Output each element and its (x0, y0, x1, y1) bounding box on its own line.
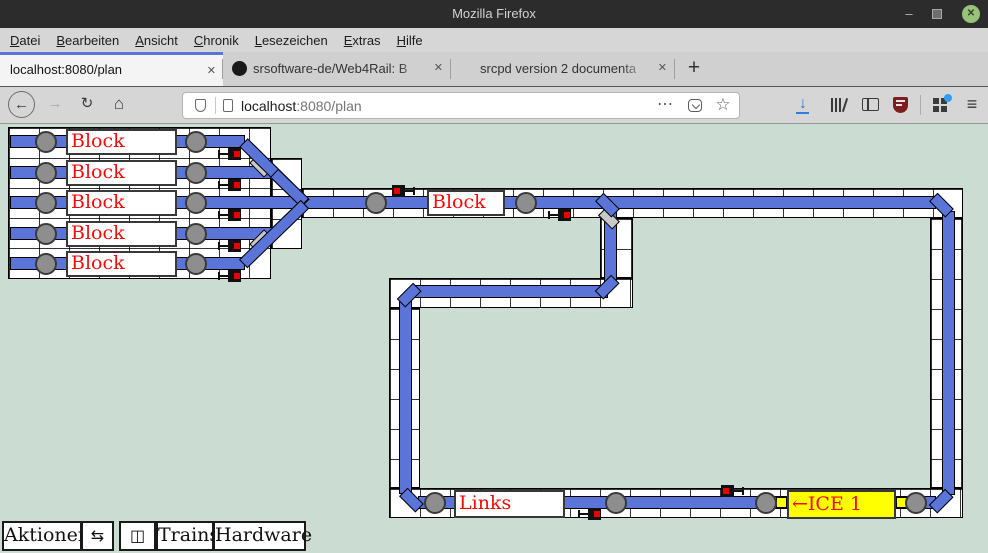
tab-title: srcpd version 2 documenta (480, 61, 648, 76)
block-label[interactable]: Block (66, 251, 177, 277)
minimize-button[interactable]: – (900, 5, 918, 23)
back-button[interactable]: ← (8, 91, 35, 118)
sensor-contact[interactable] (605, 492, 627, 514)
signal-red-lamp (394, 188, 400, 194)
new-tab-button[interactable]: + (681, 55, 707, 81)
columns-icon[interactable]: ◫ (119, 521, 156, 551)
sensor-contact[interactable] (185, 192, 207, 214)
track-segment[interactable] (942, 211, 955, 495)
sensor-contact[interactable] (35, 253, 57, 275)
train-block-ice1[interactable]: ←ICE 1 (787, 490, 896, 519)
signal-pole (734, 490, 742, 492)
block-label[interactable]: Block (66, 190, 177, 216)
navigation-bar: ← → ↻ ⌂ localhost:8080/plan ⋯ ☆ ↓ ≡ (0, 87, 988, 124)
reload-button[interactable]: ↻ (76, 87, 98, 123)
signal-red-lamp (234, 273, 240, 279)
menu-lesezeichen[interactable]: Lesezeichen (255, 33, 328, 48)
signal[interactable] (721, 485, 744, 497)
toolbar-separator (920, 95, 921, 115)
block-label[interactable]: Block (66, 221, 177, 247)
menu-datei[interactable]: Datei (10, 33, 40, 48)
signal[interactable] (218, 240, 241, 252)
menu-ansicht[interactable]: Ansicht (135, 33, 178, 48)
menu-chronik[interactable]: Chronik (194, 33, 239, 48)
page-info-icon[interactable] (223, 99, 233, 112)
signal-pole (550, 214, 558, 216)
signal-red-lamp (234, 212, 240, 218)
signal-pole (220, 153, 228, 155)
tracking-protection-shield-icon[interactable] (195, 99, 206, 112)
url-bar[interactable]: localhost:8080/plan ⋯ ☆ (182, 92, 740, 119)
track-segment[interactable] (399, 300, 412, 494)
signal[interactable] (218, 148, 241, 160)
signal-pole (580, 513, 588, 515)
github-icon (232, 61, 247, 76)
window-titlebar: Mozilla Firefox – ✕ (0, 0, 988, 28)
tab-bar: localhost:8080/plan ✕ srsoftware-de/Web4… (0, 52, 988, 87)
sidebar-toggle-icon[interactable] (862, 98, 879, 111)
occupied-track-stub (776, 497, 787, 508)
track-segment[interactable] (413, 285, 608, 298)
signal-pole (220, 184, 228, 186)
sensor-contact[interactable] (515, 192, 537, 214)
tab-title: localhost:8080/plan (10, 62, 197, 77)
forward-button[interactable]: → (44, 87, 66, 123)
ublock-origin-icon[interactable] (893, 97, 908, 113)
signal[interactable] (218, 270, 241, 282)
aktionen-button[interactable]: Aktionen (2, 521, 82, 551)
menu-hamburger-icon[interactable]: ≡ (960, 87, 984, 123)
extension-gift-icon[interactable] (933, 98, 948, 112)
url-text[interactable]: localhost:8080/plan (241, 98, 362, 114)
tab-close-icon[interactable]: ✕ (207, 64, 216, 77)
pocket-icon[interactable] (688, 99, 702, 112)
close-button[interactable]: ✕ (962, 5, 980, 23)
tab-plan[interactable]: localhost:8080/plan ✕ (0, 52, 223, 86)
signal-red-lamp (234, 151, 240, 157)
signal-pole (220, 275, 228, 277)
signal[interactable] (578, 508, 601, 520)
signal-red-lamp (564, 212, 570, 218)
menu-hilfe[interactable]: Hilfe (397, 33, 423, 48)
block-label[interactable]: Block (66, 129, 177, 155)
tab-title: srsoftware-de/Web4Rail: B (253, 61, 407, 76)
restore-button[interactable] (928, 5, 946, 23)
menu-bar: Datei Bearbeiten Ansicht Chronik Lesezei… (0, 28, 988, 52)
signal-red-lamp (234, 182, 240, 188)
track-plan: BlockBlockBlockBlockBlockBlockLinks←ICE … (0, 124, 988, 553)
links-block-label[interactable]: Links (454, 490, 565, 518)
bookmark-star-icon[interactable]: ☆ (711, 88, 735, 124)
block-label[interactable]: Block (66, 160, 177, 186)
tab-close-icon[interactable]: ✕ (434, 61, 443, 74)
signal[interactable] (548, 209, 571, 221)
menu-extras[interactable]: Extras (344, 33, 381, 48)
signal-pole (220, 214, 228, 216)
page-actions-icon[interactable]: ⋯ (653, 88, 677, 124)
signal[interactable] (218, 209, 241, 221)
signal-red-lamp (234, 243, 240, 249)
tab-srcpd-docs[interactable]: srcpd version 2 documenta ✕ (450, 52, 674, 86)
sensor-contact[interactable] (755, 492, 777, 514)
sensor-contact[interactable] (35, 162, 57, 184)
hardware-button[interactable]: Hardware (213, 521, 306, 551)
signal-red-lamp (594, 511, 600, 517)
tab-separator (450, 59, 451, 79)
sensor-contact[interactable] (35, 131, 57, 153)
sensor-contact[interactable] (905, 492, 927, 514)
sensor-contact[interactable] (35, 192, 57, 214)
sensor-contact[interactable] (424, 492, 446, 514)
tab-github[interactable]: srsoftware-de/Web4Rail: B ✕ (223, 52, 450, 86)
tab-separator (222, 59, 223, 79)
signal[interactable] (392, 185, 415, 197)
sensor-contact[interactable] (185, 131, 207, 153)
sensor-contact[interactable] (185, 253, 207, 275)
sensor-contact[interactable] (365, 192, 387, 214)
signal-red-lamp (723, 488, 729, 494)
sensor-contact[interactable] (185, 223, 207, 245)
block-label[interactable]: Block (427, 190, 505, 216)
signal-pole (405, 190, 413, 192)
restore-icon (932, 9, 942, 19)
url-separator (215, 97, 216, 114)
library-icon[interactable] (830, 98, 848, 113)
signal-pole (413, 187, 415, 195)
signal[interactable] (218, 179, 241, 191)
signal-pole (742, 487, 744, 495)
downloads-icon[interactable]: ↓ (793, 87, 813, 123)
sensor-contact[interactable] (35, 223, 57, 245)
signal-pole (220, 245, 228, 247)
sensor-contact[interactable] (185, 162, 207, 184)
notification-dot (944, 94, 952, 102)
tab-close-icon[interactable]: ✕ (658, 61, 667, 74)
tab-separator (674, 59, 675, 79)
window-title: Mozilla Firefox (0, 6, 988, 21)
menu-bearbeiten[interactable]: Bearbeiten (56, 33, 119, 48)
swap-direction-icon[interactable]: ⇆ (81, 521, 114, 551)
trains-button[interactable]: Trains (156, 521, 214, 551)
home-button[interactable]: ⌂ (108, 87, 130, 123)
